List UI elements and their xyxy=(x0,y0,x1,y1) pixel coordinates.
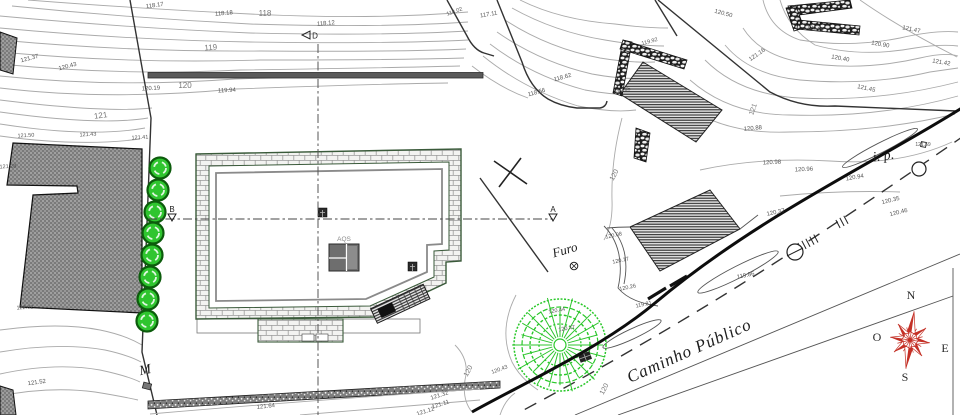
tree xyxy=(138,289,159,310)
elevation-label: 120.35 xyxy=(881,196,901,206)
contour-line xyxy=(0,112,148,121)
elevation-label: 121 xyxy=(748,103,759,116)
section-arrow-d xyxy=(302,31,310,39)
elevation-label: 120 xyxy=(178,81,192,90)
contour-line xyxy=(0,28,468,43)
elevation-label: 117.11 xyxy=(480,10,499,19)
section-letter-b: B xyxy=(169,205,174,214)
elevation-label: 118.18 xyxy=(215,10,234,18)
compass-e: E xyxy=(941,341,948,355)
hatched-building xyxy=(630,190,740,271)
contour-line xyxy=(678,100,955,132)
contour-lines-layer xyxy=(0,0,958,415)
site-plan-drawing: AQS D B A xyxy=(0,0,960,415)
elevation-label: 120.26 xyxy=(619,283,637,292)
road-lower-edge xyxy=(575,254,960,415)
tree xyxy=(150,158,171,179)
elevation-label: 119.86 xyxy=(736,271,755,281)
compass-n: N xyxy=(907,288,916,302)
elevation-label: 121.59 xyxy=(915,142,931,148)
contour-line xyxy=(28,0,468,17)
tree xyxy=(137,311,158,332)
contour-line xyxy=(0,124,145,132)
elevation-label: 121.43 xyxy=(79,132,96,139)
furo-label: Furo xyxy=(549,239,579,261)
stone-wall xyxy=(634,128,650,162)
elevation-label: 120.43 xyxy=(491,364,509,375)
elevation-label: 121.45 xyxy=(857,84,877,94)
section-letter-a: A xyxy=(550,205,556,214)
contour-line xyxy=(472,66,528,98)
contour-line xyxy=(0,346,141,362)
manhole-circle xyxy=(912,162,926,176)
elevation-label: 120.96 xyxy=(795,166,814,173)
contour-line xyxy=(520,0,668,28)
boundary-line xyxy=(655,0,677,36)
tree xyxy=(142,245,163,266)
tree xyxy=(143,223,164,244)
elevation-label: 121.37 xyxy=(20,54,40,65)
elevation-label: 120.46 xyxy=(889,208,909,218)
elevation-label: 122.02 xyxy=(16,305,33,312)
existing-building-west xyxy=(7,143,142,313)
section-arrow-b xyxy=(168,214,176,221)
retaining-wall xyxy=(148,73,483,79)
elevation-label: 120.98 xyxy=(763,159,782,166)
elevation-label: 120 xyxy=(599,382,611,396)
tree xyxy=(140,267,161,288)
edge-building-fragment xyxy=(0,386,16,415)
elevation-label: 121.52 xyxy=(27,379,47,388)
hatched-building xyxy=(620,62,722,142)
gate-symbol xyxy=(142,382,151,390)
tree xyxy=(148,180,169,201)
site-plan-canvas: AQS D B A xyxy=(0,0,960,415)
elevation-label: 121.28 xyxy=(0,164,17,171)
step xyxy=(302,334,314,341)
contour-line xyxy=(0,326,142,345)
elevation-label: 120.19 xyxy=(142,85,161,92)
aqs-label: AQS xyxy=(337,236,351,243)
column-mark xyxy=(408,262,417,271)
contour-line xyxy=(0,100,152,109)
column-mark xyxy=(318,208,327,217)
elevation-label: 118.02 xyxy=(446,6,463,17)
borehole-furo: Furo xyxy=(549,239,579,270)
elevation-label: 120 xyxy=(463,364,475,378)
elevation-label: 118.62 xyxy=(553,73,572,84)
elevation-label: 119 xyxy=(204,42,218,52)
ip-label: i. p. xyxy=(872,148,895,166)
proposed-building: AQS xyxy=(196,149,461,342)
compass-o: O xyxy=(873,330,882,344)
gate-m-label: M xyxy=(137,362,154,380)
elevation-label: 120.17 xyxy=(612,256,630,265)
elevation-label: 121.47 xyxy=(902,25,922,35)
compass-s: S xyxy=(902,370,909,384)
elevation-label: 121.64 xyxy=(256,403,276,411)
elevation-label: 121.16 xyxy=(748,47,767,63)
boundary-wall xyxy=(480,178,548,272)
gate-mark: M xyxy=(137,362,154,390)
section-letter-d: D xyxy=(312,32,318,41)
edge-building-fragment xyxy=(0,32,17,74)
elevation-label: 120.43 xyxy=(58,62,78,73)
elevation-label: 119.94 xyxy=(218,88,237,95)
elevation-label: 120.90 xyxy=(871,40,891,49)
boundary-line xyxy=(658,0,956,111)
road-shoulder-line xyxy=(695,246,781,298)
contour-line xyxy=(0,52,464,61)
elevation-label: 121.50 xyxy=(17,133,34,140)
porch xyxy=(258,319,343,342)
contour-line xyxy=(0,367,140,382)
elevation-label: 121.42 xyxy=(932,58,952,67)
contour-line xyxy=(0,390,138,400)
elevation-label: 120 xyxy=(609,168,621,182)
compass-rose: N E S O xyxy=(873,288,949,384)
wall-inner-edge xyxy=(209,162,449,308)
elevation-label: 121 xyxy=(93,110,108,121)
survey-cross xyxy=(494,158,527,187)
elevation-label: 120.40 xyxy=(831,54,851,63)
elevation-label: 118 xyxy=(259,9,272,18)
elevation-label: 120.50 xyxy=(714,9,734,20)
elevation-label: 121.41 xyxy=(131,135,148,142)
elevation-label: 121.12 xyxy=(416,406,436,415)
road-culvert-ticks xyxy=(798,216,848,251)
road-name-label: Caminho Público xyxy=(624,315,755,387)
section-arrow-a xyxy=(549,214,557,221)
elevation-label: 118.12 xyxy=(317,20,336,28)
